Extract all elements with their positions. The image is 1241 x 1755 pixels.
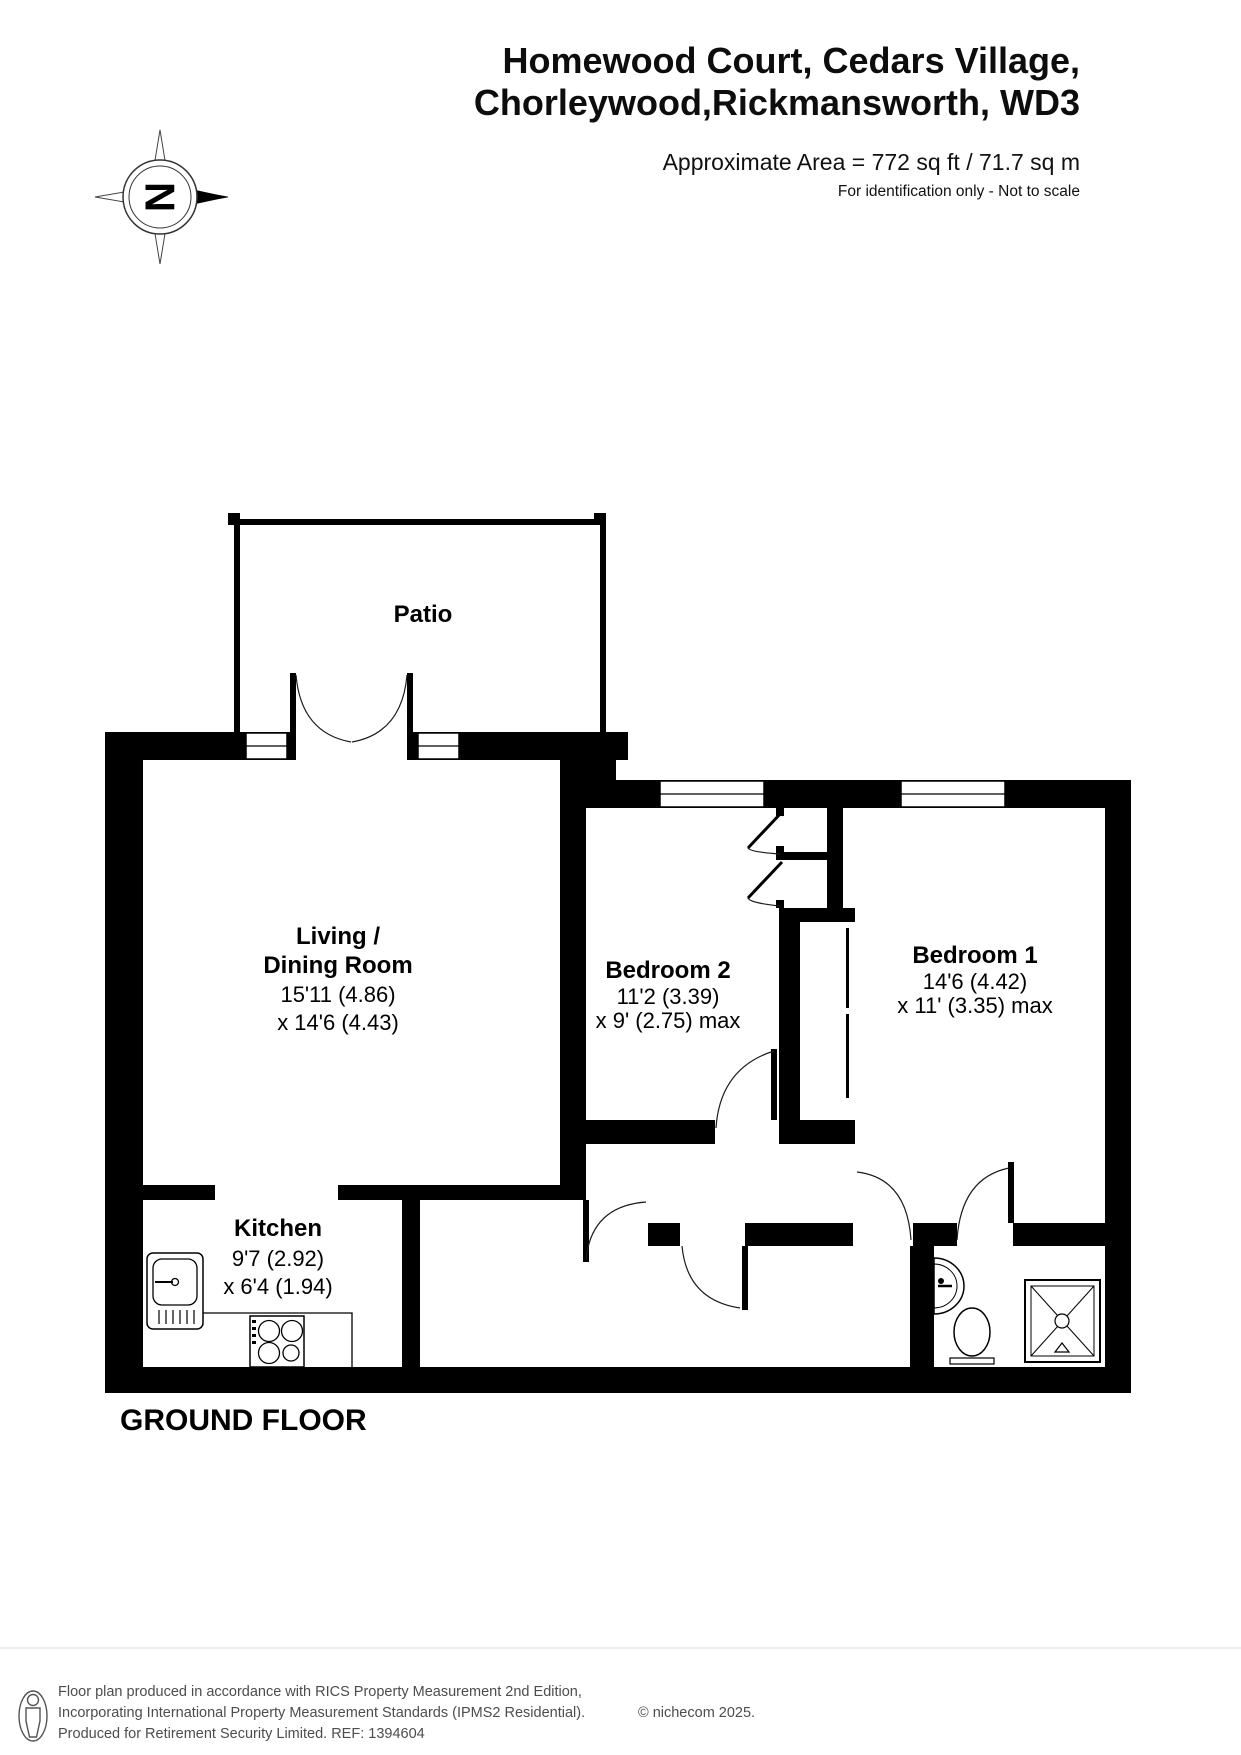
wall-kitchen-right [402, 1200, 420, 1367]
kitchen-label: Kitchen 9'7 (2.92) x 6'4 (1.94) [223, 1215, 332, 1299]
svg-text:14'6 (4.42): 14'6 (4.42) [923, 969, 1028, 994]
wall-bed2-right [779, 908, 800, 1144]
patio-corner-dot [594, 513, 606, 525]
header: Homewood Court, Cedars Village, Chorleyw… [474, 40, 1080, 200]
wall-left [105, 732, 143, 1393]
wall-hall-band [648, 1223, 680, 1246]
wardrobe-front-line [846, 1014, 849, 1098]
footer-copyright: © nichecom 2025. [638, 1705, 755, 1721]
svg-text:Kitchen: Kitchen [234, 1215, 322, 1242]
compass-icon: N [95, 130, 228, 264]
french-doors [290, 673, 413, 760]
wall-cupboard-bottom [779, 908, 855, 922]
kitchen-hob-icon [250, 1316, 304, 1367]
bedroom2-door [716, 1049, 777, 1128]
wall-bathroom-left [910, 1246, 934, 1367]
svg-text:x 6'4 (1.94): x 6'4 (1.94) [223, 1274, 332, 1299]
floorplan-canvas: Homewood Court, Cedars Village, Chorleyw… [0, 0, 1241, 1755]
svg-text:15'11 (4.86): 15'11 (4.86) [280, 982, 395, 1007]
wall-cupboard-right [827, 808, 843, 922]
person-icon [19, 1691, 47, 1741]
shower-icon [1025, 1280, 1100, 1362]
approximate-area: Approximate Area = 772 sq ft / 71.7 sq m [663, 149, 1080, 175]
floor-label: GROUND FLOOR [120, 1404, 367, 1437]
wall-right [1105, 780, 1131, 1393]
footer-line3: Produced for Retirement Security Limited… [58, 1726, 425, 1742]
living-hall-door [583, 1200, 646, 1262]
svg-text:9'7 (2.92): 9'7 (2.92) [232, 1246, 324, 1271]
bedroom2-label: Bedroom 2 11'2 (3.39) x 9' (2.75) max [596, 957, 741, 1033]
bathroom-door [957, 1162, 1014, 1240]
patio-label: Patio [394, 601, 453, 628]
bathroom-fixtures [934, 1258, 1100, 1364]
wardrobe-front-line [846, 928, 849, 1008]
wall-hall-band [1013, 1223, 1105, 1246]
bedroom1-label: Bedroom 1 14'6 (4.42) x 11' (3.35) max [897, 942, 1052, 1018]
living-window-right [418, 733, 459, 759]
patio-structure [228, 513, 606, 750]
footer-line1: Floor plan produced in accordance with R… [58, 1684, 582, 1700]
bedroom1-door [857, 1172, 911, 1240]
svg-text:Bedroom 2: Bedroom 2 [605, 957, 730, 984]
wall-kitchen-top-left [143, 1185, 215, 1200]
wall-bottom [105, 1367, 1131, 1393]
svg-text:Living /: Living / [296, 923, 380, 950]
svg-text:Dining Room: Dining Room [263, 952, 412, 979]
living-window-left [246, 733, 287, 759]
patio-corner-dot [228, 513, 240, 525]
wall-bed2-bottom [560, 1120, 715, 1144]
wall-hall-band [745, 1223, 853, 1246]
wall-wardrobe-bottom [779, 1120, 855, 1144]
bedroom1-window [901, 781, 1005, 807]
living-room-label: Living / Dining Room 15'11 (4.86) x 14'6… [263, 923, 412, 1035]
bedroom2-window [660, 781, 764, 807]
basin-icon [934, 1258, 964, 1314]
svg-text:11'2 (3.39): 11'2 (3.39) [617, 984, 720, 1009]
svg-text:x 11' (3.35) max: x 11' (3.35) max [897, 993, 1052, 1018]
footer: Floor plan produced in accordance with R… [0, 1648, 1241, 1742]
cupboard-door-bottom [748, 862, 782, 906]
disclaimer-text: For identification only - Not to scale [838, 183, 1080, 200]
wall-cupboard-divider [779, 852, 843, 860]
footer-line2: Incorporating International Property Mea… [58, 1705, 585, 1721]
toilet-icon [950, 1308, 994, 1364]
svg-text:x 9' (2.75) max: x 9' (2.75) max [596, 1008, 741, 1033]
floorplan-page: Homewood Court, Cedars Village, Chorleyw… [0, 0, 1241, 1755]
wall-hall-band [913, 1223, 957, 1246]
wall-kitchen-top-right [338, 1185, 586, 1200]
compass-north-letter: N [137, 182, 184, 212]
entrance-door [682, 1246, 748, 1310]
page-title-line2: Chorleywood,Rickmansworth, WD3 [474, 82, 1080, 123]
page-title-line1: Homewood Court, Cedars Village, [503, 40, 1080, 81]
svg-text:x 14'6 (4.43): x 14'6 (4.43) [277, 1010, 399, 1035]
svg-text:Bedroom 1: Bedroom 1 [912, 942, 1037, 969]
kitchen-sink-icon [147, 1253, 203, 1329]
